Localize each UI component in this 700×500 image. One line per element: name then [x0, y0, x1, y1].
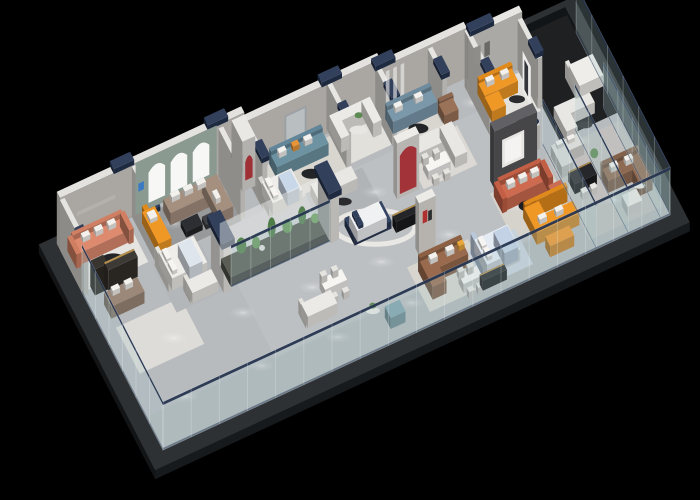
ceiling-light-glow: [361, 186, 389, 198]
salmon-sofa-arm: [77, 253, 82, 269]
logo-mark-red: [423, 210, 428, 224]
booth-table: [350, 126, 368, 135]
brown-sofa-back: [418, 254, 420, 275]
potted-plant: [355, 112, 363, 118]
wall-art-frame: [473, 45, 480, 66]
salmon-sofa-arm: [129, 228, 134, 244]
red-arch-panel: [400, 146, 417, 194]
coffee-table: [509, 95, 525, 103]
partition-wall: [538, 57, 543, 109]
wall-art-frame: [484, 41, 490, 58]
back-wall: [465, 31, 468, 93]
aquarium-pillar: [331, 194, 339, 244]
ceiling-light-glow: [229, 307, 257, 319]
logo-wall: [419, 196, 436, 256]
logo-mark-dark: [428, 209, 432, 221]
charcoal-feature-wall: [490, 123, 495, 190]
showroom-3d-render: [0, 0, 700, 500]
back-wall: [57, 192, 60, 250]
ceiling-light-glow: [367, 256, 395, 268]
logo-wall: [415, 196, 419, 255]
red-arch-wall: [393, 136, 397, 199]
showroom-canvas: [0, 0, 700, 500]
coral-sofa-arm: [503, 197, 508, 213]
ceiling-light-glow: [160, 332, 188, 344]
